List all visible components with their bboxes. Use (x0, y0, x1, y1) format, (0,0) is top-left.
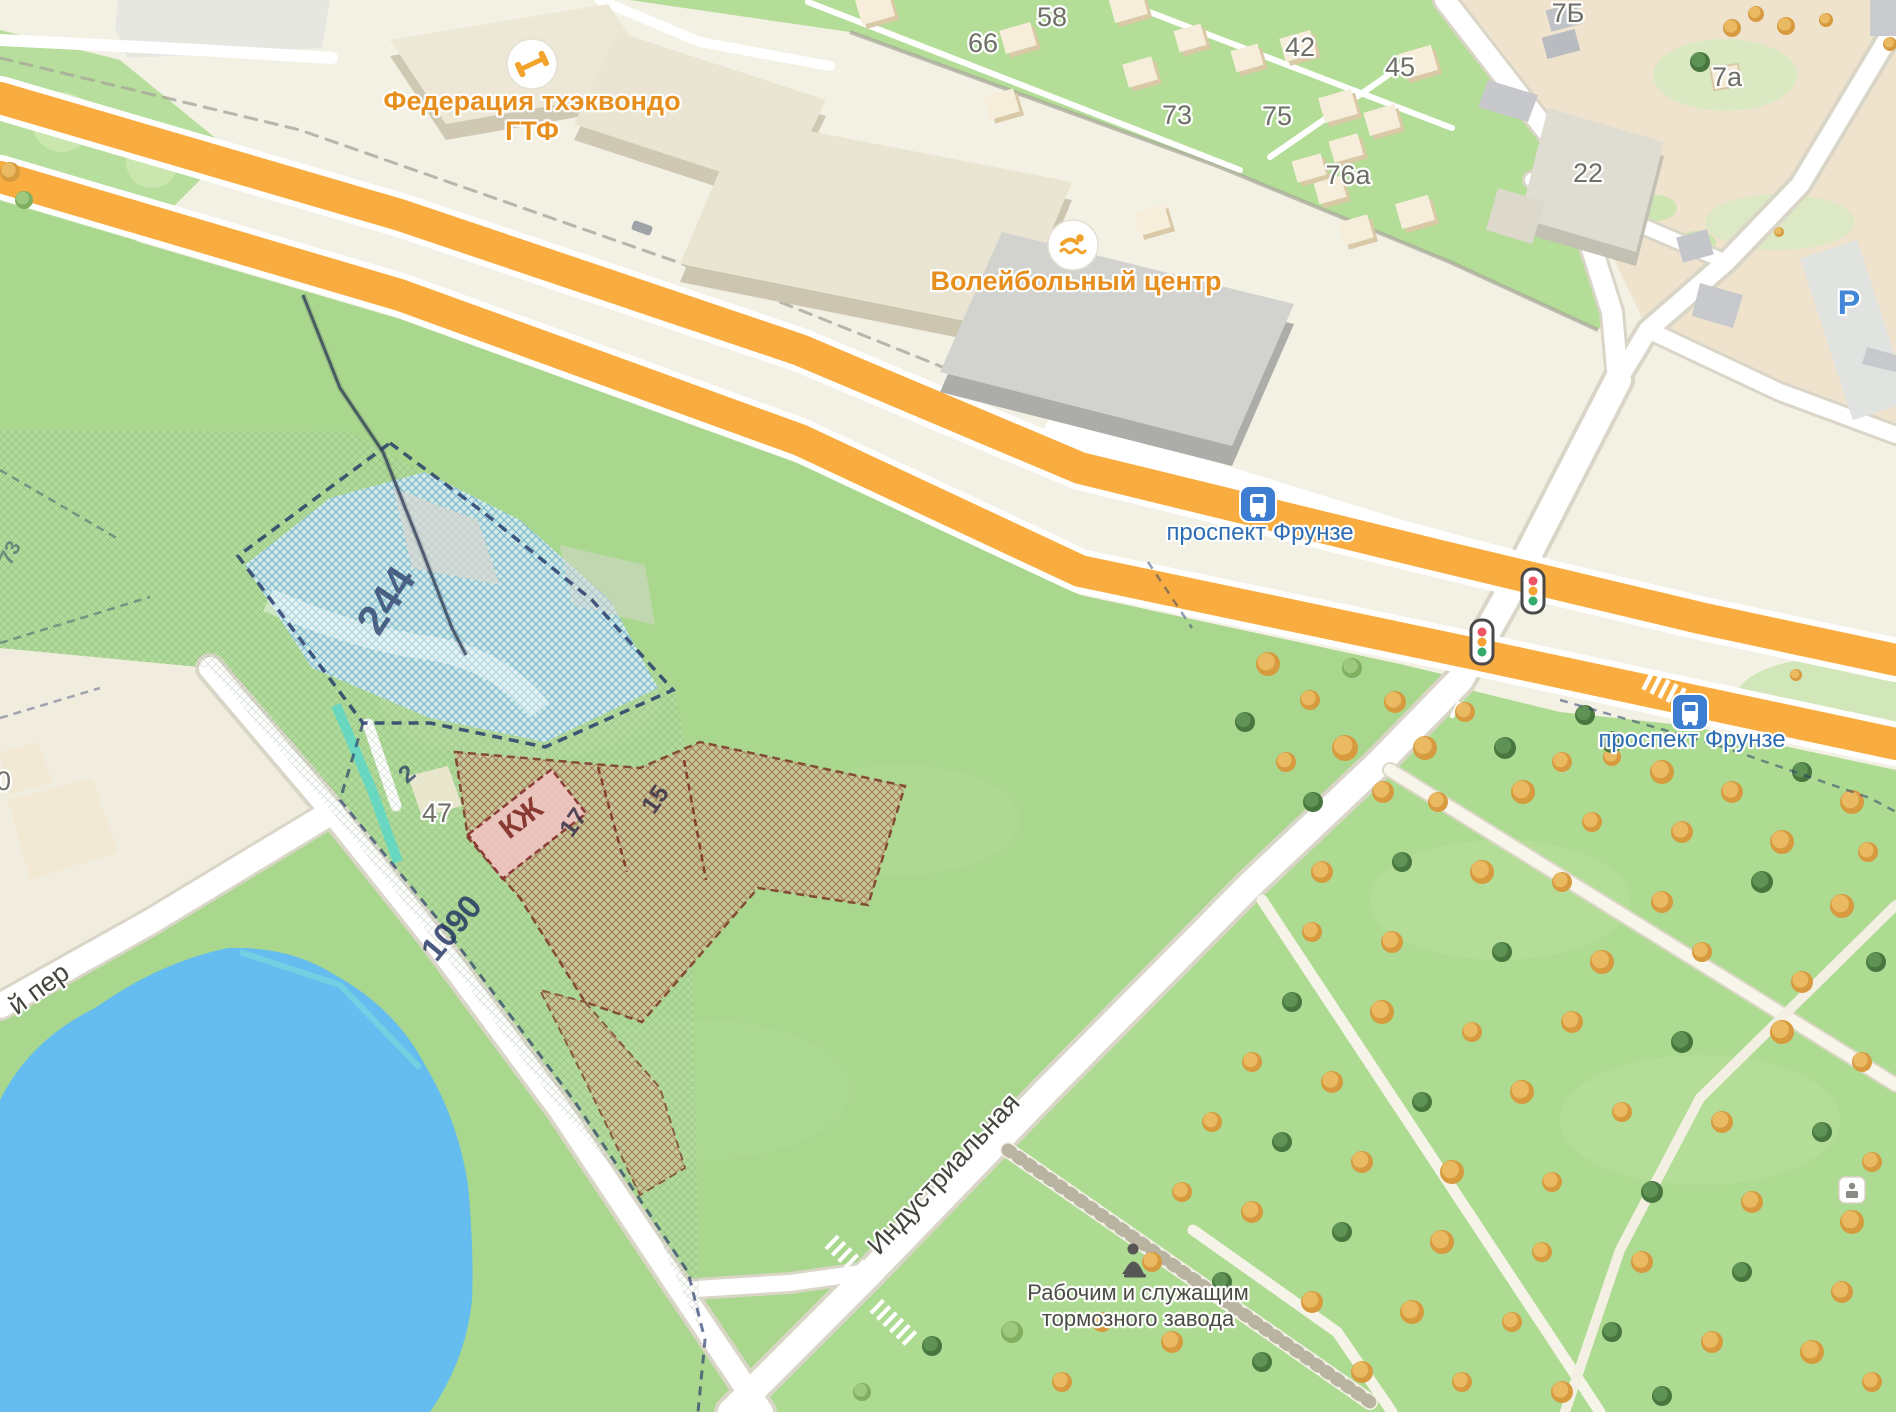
conifer-tree-icon (1732, 1262, 1752, 1282)
traffic-light-icon (1522, 569, 1544, 613)
building-number-42: 42 (1285, 32, 1315, 62)
tree-icon (1819, 13, 1833, 27)
tree-icon (1721, 781, 1743, 803)
conifer-tree-icon (1671, 1031, 1693, 1053)
tree-icon (1502, 1312, 1522, 1332)
bus-stop-icon[interactable] (1672, 694, 1708, 730)
conifer-tree-icon (1492, 942, 1512, 962)
tree-icon (1770, 1020, 1794, 1044)
tree-icon (1791, 971, 1813, 993)
tree-icon (1332, 735, 1358, 761)
building-number-73: 73 (1162, 100, 1192, 130)
conifer-tree-icon (1272, 1132, 1292, 1152)
conifer-tree-icon (1812, 1122, 1832, 1142)
tree-icon (1840, 1210, 1864, 1234)
conifer-tree-icon (1866, 952, 1886, 972)
tree-icon (1510, 1080, 1534, 1104)
tree-icon (1770, 830, 1794, 854)
poi-label-taekwondo-line2[interactable]: ГТФ (505, 116, 559, 146)
building-number-75: 75 (1262, 101, 1292, 131)
tree-icon (1552, 752, 1572, 772)
tree-icon (1800, 1340, 1824, 1364)
bus-stop-icon[interactable] (1240, 486, 1276, 522)
poi-circle (1048, 220, 1098, 270)
tree-icon (1428, 792, 1448, 812)
conifer-tree-icon (1252, 1352, 1272, 1372)
tree-icon (1311, 861, 1333, 883)
park-blob (1560, 1055, 1840, 1185)
conifer-tree-icon (1494, 737, 1516, 759)
tree-icon (1692, 942, 1712, 962)
tree-icon (1830, 894, 1854, 918)
building-number-22: 22 (1573, 158, 1603, 188)
poi-label-taekwondo-line1[interactable]: Федерация тхэквондо (383, 86, 680, 116)
tree-icon (1561, 1011, 1583, 1033)
tree-icon (1276, 752, 1296, 772)
tree-icon (1242, 1052, 1262, 1072)
monument-label-line1[interactable]: Рабочим и служащим (1027, 1280, 1248, 1305)
tree-icon (1701, 1331, 1723, 1353)
park-poi-icon[interactable] (1839, 1177, 1865, 1203)
tree-icon (1777, 17, 1795, 35)
building-number-7b: 7Б (1552, 0, 1585, 28)
tree-icon (1858, 842, 1878, 862)
tree-icon (1511, 780, 1535, 804)
tree-icon (1001, 1321, 1023, 1343)
tree-icon (1723, 19, 1741, 37)
building-number-76a: 76а (1325, 160, 1371, 190)
tree-icon (1748, 6, 1764, 22)
monument-label-line2[interactable]: тормозного завода (1042, 1306, 1235, 1331)
conifer-tree-icon (1392, 852, 1412, 872)
poi-taekwondo-icon-group[interactable] (507, 39, 557, 89)
tree-icon (1612, 1102, 1632, 1122)
tree-icon (1142, 1252, 1162, 1272)
conifer-tree-icon (1303, 792, 1323, 812)
conifer-tree-icon (1412, 1092, 1432, 1112)
building-number-45: 45 (1385, 52, 1415, 82)
tree-icon (1774, 227, 1784, 237)
tree-icon (1172, 1182, 1192, 1202)
tree-icon (1381, 931, 1403, 953)
building-number-66: 66 (968, 28, 998, 58)
tree-icon (1831, 1281, 1853, 1303)
conifer-tree-icon (1332, 1222, 1352, 1242)
conifer-tree-icon (922, 1336, 942, 1356)
conifer-tree-icon (1235, 712, 1255, 732)
tree-icon (1342, 658, 1362, 678)
tree-icon (1202, 1112, 1222, 1132)
tree-icon (1650, 760, 1674, 784)
tree-icon (1582, 812, 1602, 832)
tree-icon (1852, 1052, 1872, 1072)
tree-icon (1413, 736, 1437, 760)
tree-icon (1351, 1361, 1373, 1383)
conifer-tree-icon (1641, 1181, 1663, 1203)
tree-icon (1542, 1172, 1562, 1192)
traffic-light-icon (1471, 620, 1493, 664)
tree-icon (1462, 1022, 1482, 1042)
tree-icon (1301, 1291, 1323, 1313)
tree-icon (1351, 1151, 1373, 1173)
tree-icon (853, 1383, 871, 1401)
tree-icon (0, 162, 20, 182)
tree-icon (1651, 891, 1673, 913)
tree-icon (1671, 821, 1693, 843)
tree-icon (1840, 790, 1864, 814)
conifer-tree-icon (1751, 871, 1773, 893)
tree-icon (1552, 872, 1572, 892)
poi-label-volleyball[interactable]: Волейбольный центр (930, 266, 1221, 296)
building-number-58: 58 (1037, 2, 1067, 32)
tree-icon (1452, 1372, 1472, 1392)
tree-icon (1302, 922, 1322, 942)
tree-icon (1052, 1372, 1072, 1392)
tree-icon (1532, 1242, 1552, 1262)
tree-icon (1161, 1331, 1183, 1353)
tree-icon (1384, 691, 1406, 713)
tree-icon (1241, 1201, 1263, 1223)
transit-label-frunze-2[interactable]: проспект Фрунзе (1598, 726, 1785, 753)
tree-icon (1790, 669, 1802, 681)
building-number-40: 40 (0, 766, 11, 796)
tree-icon (1862, 1152, 1882, 1172)
building-edge[interactable] (1870, 0, 1896, 36)
tree-icon (1440, 1160, 1464, 1184)
tree-icon (1551, 1381, 1573, 1403)
building-number-47: 47 (422, 798, 452, 828)
tree-icon (1741, 1191, 1763, 1213)
tree-icon (1370, 1000, 1394, 1024)
tree-icon (1372, 781, 1394, 803)
parking-label[interactable]: Р (1838, 284, 1861, 322)
conifer-tree-icon (1690, 52, 1710, 72)
tree-icon (1321, 1071, 1343, 1093)
tree-icon (1862, 1372, 1882, 1392)
tree-icon (1631, 1251, 1653, 1273)
tree-icon (1300, 690, 1320, 710)
conifer-tree-icon (1602, 1322, 1622, 1342)
tree-icon (1711, 1111, 1733, 1133)
tree-icon (1256, 652, 1280, 676)
building-number-7a: 7а (1712, 62, 1743, 92)
conifer-tree-icon (1652, 1386, 1672, 1406)
map-canvas[interactable]: 244 1090 КЖ 17 15 2 73 (0, 0, 1896, 1412)
transit-label-frunze-1[interactable]: проспект Фрунзе (1166, 519, 1353, 546)
poi-volleyball-icon-group[interactable] (1048, 220, 1098, 270)
tree-icon (1455, 702, 1475, 722)
tree-icon (1430, 1230, 1454, 1254)
tree-icon (15, 191, 33, 209)
tree-icon (1590, 950, 1614, 974)
tree-icon (1400, 1300, 1424, 1324)
conifer-tree-icon (1282, 992, 1302, 1012)
tree-icon (1470, 860, 1494, 884)
